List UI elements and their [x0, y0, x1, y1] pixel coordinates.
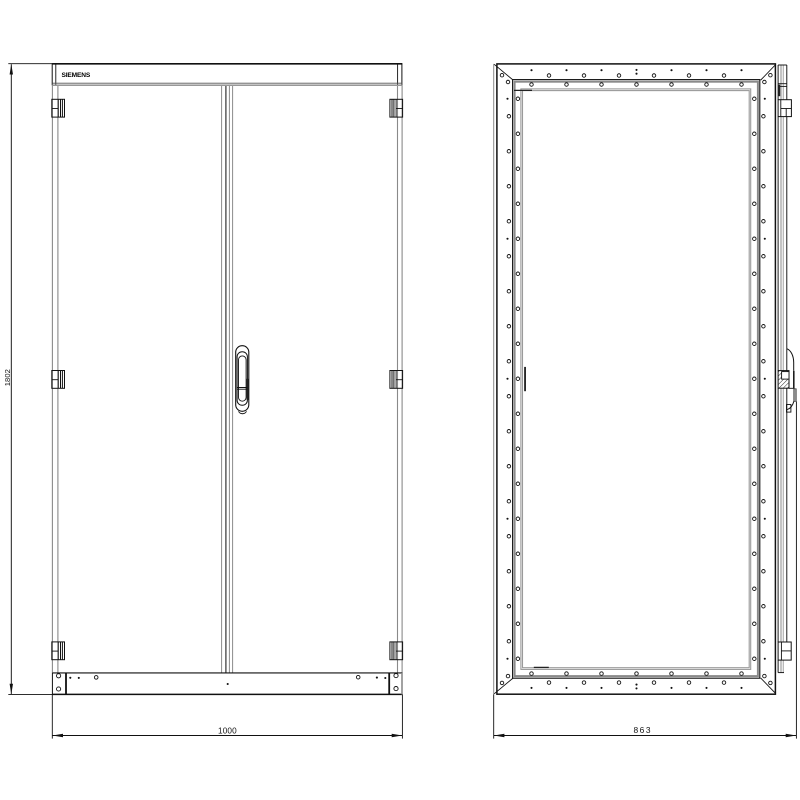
svg-text:1802: 1802	[3, 369, 12, 386]
svg-text:SIEMENS: SIEMENS	[62, 72, 91, 79]
svg-text:1000: 1000	[218, 727, 237, 736]
svg-text:863: 863	[634, 725, 652, 735]
